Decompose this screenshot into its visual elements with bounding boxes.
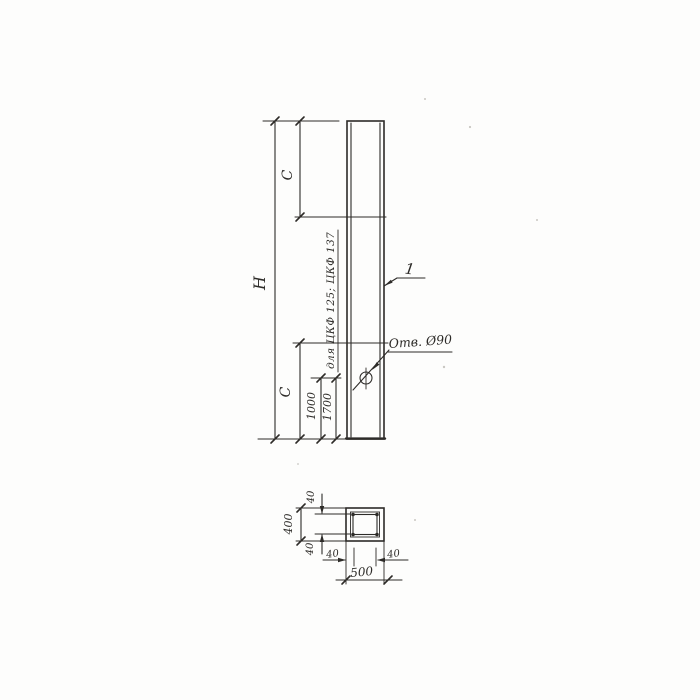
reinforcement-cage	[353, 515, 377, 535]
dim-C-upper-label: C	[280, 169, 296, 180]
item-mark-arrow	[384, 280, 393, 286]
dim-40-top-label: 40	[306, 490, 317, 504]
dim-40-bottom-label: 40	[305, 542, 316, 556]
dim-500-label: 500	[350, 564, 374, 580]
column-outline	[346, 121, 385, 439]
dim-1700: 1700	[321, 374, 340, 443]
dim-1700-label: 1700	[321, 393, 334, 421]
drawing-sheet: H C C 1000 1700	[0, 0, 700, 700]
item-mark: 1	[384, 259, 425, 286]
hole-leader-arrow	[372, 362, 380, 370]
dim-400: 400	[282, 504, 305, 545]
dim-1000-label: 1000	[305, 392, 318, 420]
hole-callout: Отв. Ø90	[353, 332, 453, 390]
dim-C-upper: C	[280, 117, 304, 221]
rebar-dot	[375, 533, 379, 537]
dim-C-lower-label: C	[278, 386, 294, 397]
dim-40-left: 40	[323, 548, 346, 562]
dim-H: H	[250, 117, 279, 443]
dim-H-label: H	[250, 275, 269, 291]
dim-40-top: 40	[306, 490, 324, 514]
dim-40-left-label: 40	[325, 548, 341, 561]
rebar-dot	[351, 533, 355, 537]
variant-note: для ЦКФ 125; ЦКФ 137	[325, 230, 338, 372]
column-elevation: H C C 1000 1700	[250, 117, 453, 443]
dim-400-label: 400	[282, 514, 295, 536]
hole-callout-text: Отв. Ø90	[388, 332, 452, 351]
cross-section: 400 40 40 40 40	[282, 490, 408, 584]
rebar-dot	[375, 513, 379, 517]
rebar-dot	[351, 513, 355, 517]
technical-drawing: H C C 1000 1700	[0, 0, 700, 700]
section-outline	[346, 508, 384, 541]
item-mark-text: 1	[404, 259, 416, 278]
dim-40-right-label: 40	[386, 548, 402, 561]
dim-40-right: 40	[377, 548, 408, 562]
dim-40-bottom: 40	[305, 534, 324, 556]
dim-C-lower: C	[278, 339, 304, 443]
variant-note-text: для ЦКФ 125; ЦКФ 137	[325, 232, 337, 369]
